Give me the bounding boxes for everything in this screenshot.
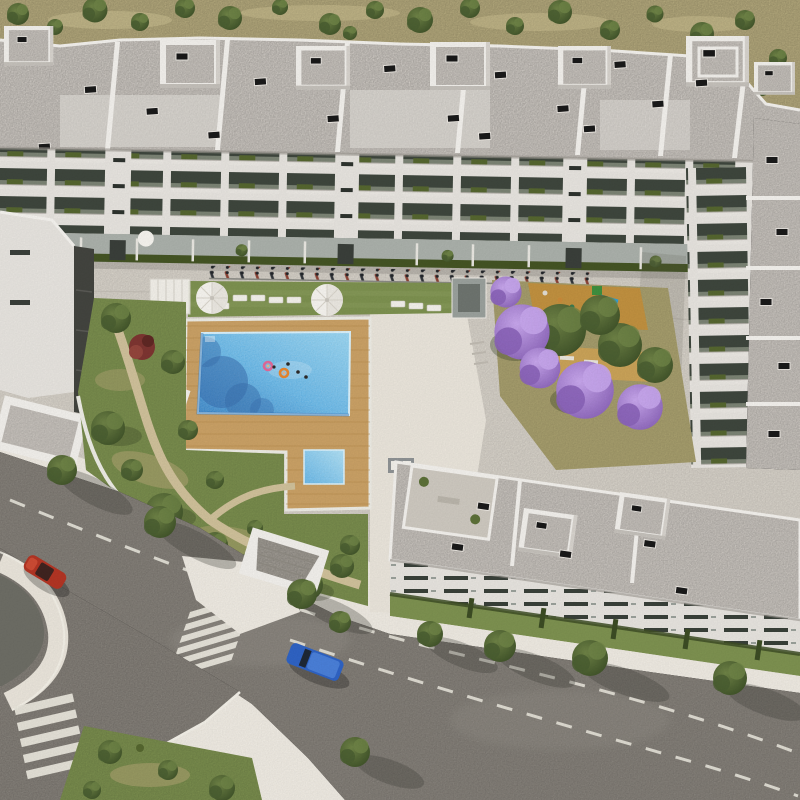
grain-overlay [0,0,800,800]
aerial-render [0,0,800,800]
